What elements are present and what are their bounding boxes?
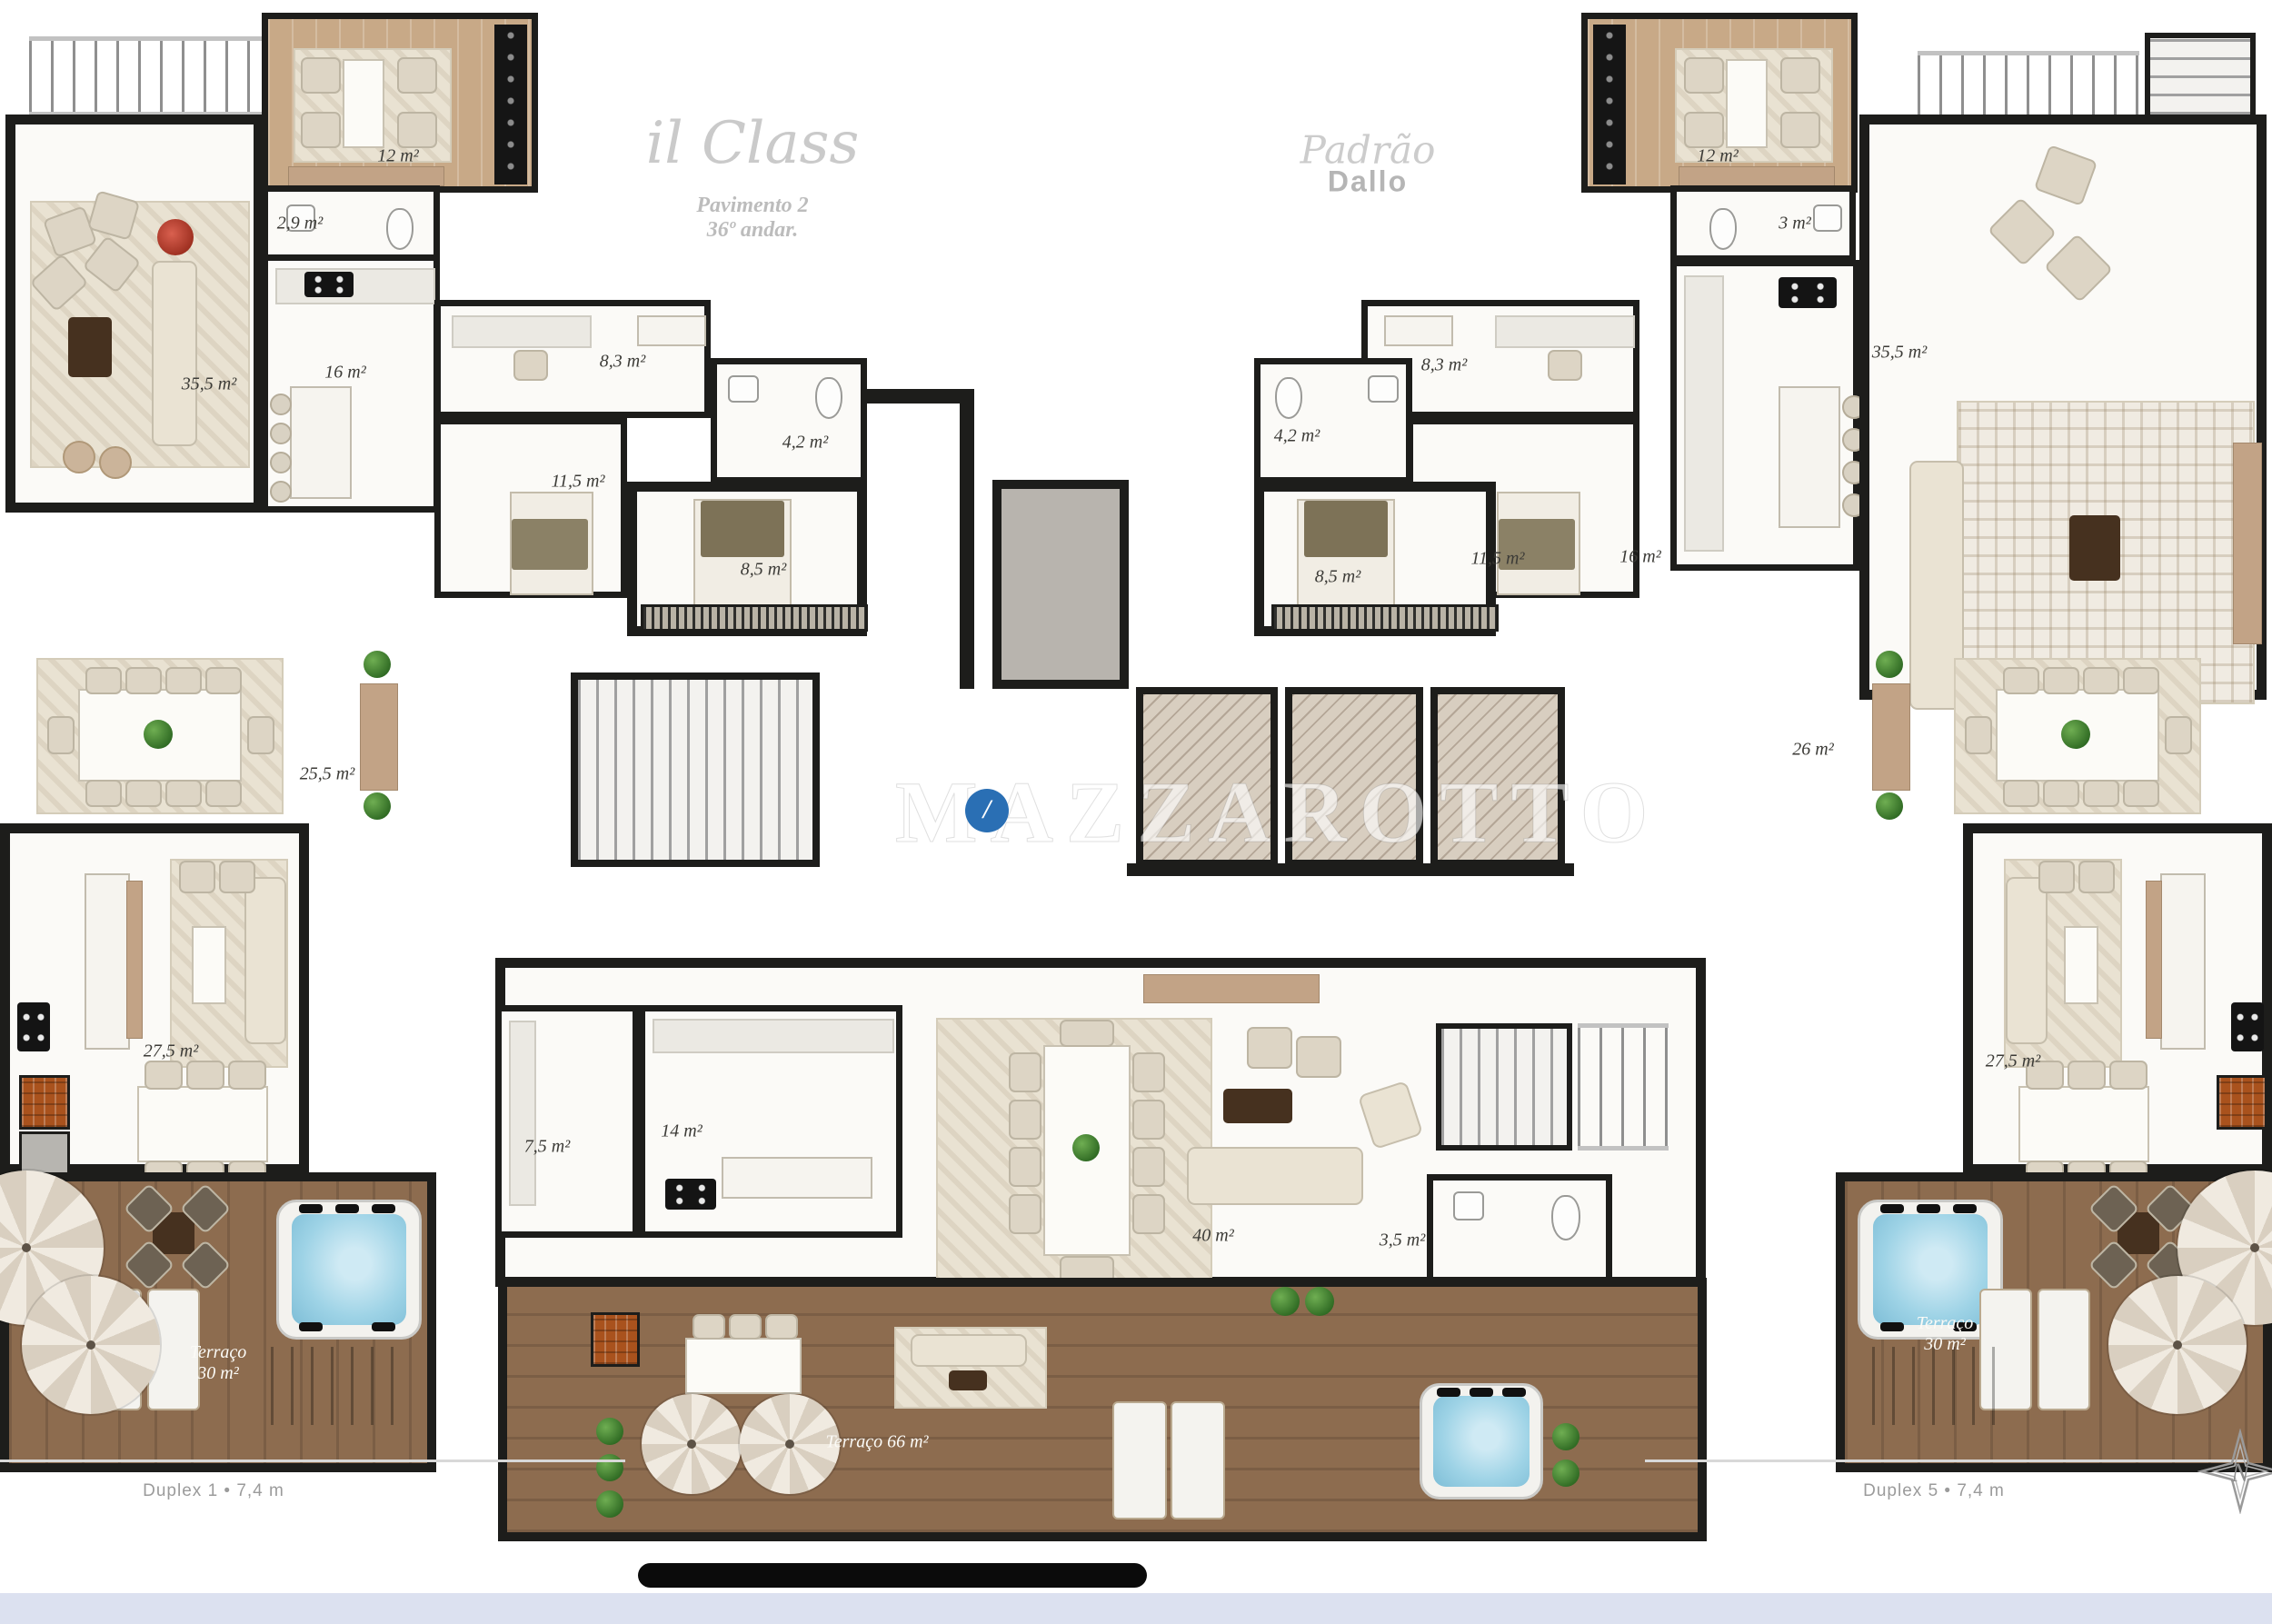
chair — [205, 780, 242, 807]
baseline-left — [0, 1460, 625, 1462]
left-suite-room — [434, 418, 627, 598]
armchair — [1780, 112, 1820, 148]
shrub-icon — [596, 1418, 623, 1445]
area-label-right-living: 35,5 m² — [1872, 343, 1927, 364]
chair — [1009, 1147, 1041, 1187]
chair — [2165, 716, 2192, 754]
wardrobe — [641, 604, 868, 632]
pouf — [99, 446, 132, 479]
hall-console — [360, 683, 398, 791]
chair — [47, 716, 75, 754]
jacuzzi — [276, 1200, 422, 1340]
terrace-name: Terraço — [1917, 1313, 1974, 1334]
wardrobe — [1271, 604, 1499, 632]
kitchen-island — [1779, 386, 1840, 528]
cooktop-icon — [17, 1002, 50, 1051]
armchair — [1780, 57, 1820, 94]
wine-cellar-icon — [1593, 25, 1626, 184]
center-pantry-room — [495, 1005, 639, 1238]
area-label-right-family: 27,5 m² — [1986, 1051, 2040, 1072]
blanket — [1304, 501, 1388, 557]
counter — [509, 1021, 536, 1206]
core-staircase — [571, 673, 820, 867]
armchair — [301, 112, 341, 148]
plant-icon — [1876, 651, 1903, 678]
center-duplex-stairs — [1436, 1023, 1572, 1151]
desk — [452, 315, 592, 348]
sofa — [152, 261, 197, 446]
jacuzzi — [1420, 1383, 1543, 1499]
stool — [270, 481, 292, 503]
chair — [85, 780, 122, 807]
core-wall — [960, 389, 974, 689]
bed — [1297, 499, 1395, 610]
cabinet — [1384, 315, 1453, 346]
area-label-left-family: 27,5 m² — [144, 1041, 198, 1062]
elevator-shaft — [992, 480, 1129, 689]
chair — [2003, 667, 2039, 694]
chair — [205, 667, 242, 694]
chair — [186, 1061, 224, 1090]
stool — [270, 423, 292, 444]
armchair — [2038, 861, 2075, 893]
core-wall — [863, 389, 974, 404]
sofa — [244, 877, 286, 1044]
area-label-center-pantry: 7,5 m² — [524, 1137, 570, 1158]
lounge-table — [1726, 59, 1768, 148]
center-dining-rug — [936, 1018, 1212, 1285]
chair — [765, 1314, 798, 1340]
right-family-room — [1963, 823, 2272, 1174]
cooktop-icon — [304, 272, 354, 297]
centerpiece-plant-icon — [1072, 1134, 1100, 1161]
armchair — [1988, 197, 2057, 266]
center-terrace-deck — [498, 1278, 1707, 1541]
shrub-icon — [1271, 1287, 1300, 1316]
cooktop-icon — [1779, 277, 1837, 308]
floor-plan: 12 m² 2,9 m² 35,5 m² 16 m² 8,3 m² 11,5 m… — [0, 0, 2272, 1624]
kitchen-counter — [1684, 275, 1724, 552]
toilet-icon — [386, 208, 414, 250]
centerpiece-plant-icon — [2061, 720, 2090, 749]
pouf — [63, 441, 95, 473]
sideboard — [85, 873, 130, 1050]
armchair — [397, 112, 437, 148]
chair — [2109, 1061, 2147, 1090]
deck-steps — [1872, 1347, 2008, 1425]
chair — [247, 716, 274, 754]
patio-dining-table — [685, 1338, 802, 1394]
area-label-right-bedroom: 8,5 m² — [1315, 567, 1360, 588]
area-label-center-lavabo: 3,5 m² — [1380, 1230, 1425, 1251]
chair — [2003, 780, 2039, 807]
jacuzzi-water — [1873, 1214, 1988, 1324]
sofa — [2006, 877, 2048, 1044]
standard-logo-bold: Dallo — [1328, 165, 1408, 199]
kitchen-island — [722, 1157, 872, 1199]
north-letter: N — [2230, 1458, 2251, 1488]
terrace-label-right: Terraço 30 m² — [1917, 1313, 1974, 1355]
terrace-label-left: Terraço 30 m² — [190, 1342, 247, 1384]
coffee-table — [192, 926, 226, 1004]
right-dining-rug — [1954, 658, 2201, 814]
sink-icon — [1813, 204, 1842, 232]
left-living-room — [5, 115, 264, 513]
bottom-strip — [0, 1593, 2272, 1624]
armchair — [2078, 861, 2115, 893]
sink-icon — [1453, 1191, 1484, 1220]
coffee-table — [2064, 926, 2098, 1004]
tv-sideboard — [1143, 974, 1320, 1003]
right-living-room — [1859, 115, 2267, 700]
left-kitchen-room — [262, 254, 440, 513]
area-label-left-living: 35,5 m² — [182, 374, 236, 395]
footer-label-duplex5: Duplex 5 • 7,4 m — [1863, 1481, 2005, 1501]
project-logo: il Class — [646, 110, 860, 177]
chair — [1132, 1147, 1165, 1187]
kitchen-island — [290, 386, 352, 499]
center-lavabo-room — [1427, 1174, 1612, 1283]
jacuzzi-water — [292, 1214, 406, 1324]
chair — [144, 1061, 183, 1090]
tv-bench — [2146, 881, 2162, 1039]
chair — [228, 1061, 266, 1090]
chair — [1009, 1194, 1041, 1234]
shrub-icon — [1552, 1423, 1579, 1450]
wine-cellar-icon — [494, 25, 527, 184]
chair — [1009, 1100, 1041, 1140]
media-console — [1679, 166, 1835, 186]
bed — [693, 499, 792, 610]
toilet-icon — [1275, 377, 1302, 419]
chair — [165, 780, 202, 807]
chair — [2083, 780, 2119, 807]
plant-icon — [364, 792, 391, 820]
blanket — [701, 501, 784, 557]
area-label-right-lounge: 12 m² — [1697, 146, 1738, 167]
area-label-right-suite: 11,5 m² — [1471, 549, 1525, 570]
chair — [1060, 1020, 1114, 1047]
area-label-right-office: 8,3 m² — [1421, 355, 1467, 376]
umbrella-icon — [642, 1394, 742, 1494]
armchair — [2044, 234, 2113, 303]
area-label-left-suite: 11,5 m² — [552, 472, 605, 493]
wood-oven-icon — [19, 1075, 70, 1130]
area-label-left-lavabo: 2,9 m² — [277, 214, 323, 234]
armchair — [2034, 144, 2098, 206]
cooktop-icon — [665, 1179, 716, 1210]
bed — [1497, 492, 1580, 595]
chair — [1009, 1052, 1041, 1092]
area-label-left-office: 8,3 m² — [600, 352, 645, 373]
armchair — [1684, 57, 1724, 94]
chair — [2123, 780, 2159, 807]
stool — [270, 452, 292, 473]
media-console — [288, 166, 444, 186]
floor-label-line2: 36º andar. — [696, 218, 808, 243]
stair-railing — [1578, 1023, 1669, 1151]
terrace-area: 30 m² — [190, 1363, 247, 1384]
shrub-icon — [596, 1454, 623, 1481]
terrace-name: Terraço — [190, 1342, 247, 1363]
chair — [2083, 667, 2119, 694]
centerpiece-plant-icon — [144, 720, 173, 749]
chair — [2068, 1061, 2106, 1090]
chair — [1132, 1100, 1165, 1140]
shrub-icon — [596, 1490, 623, 1518]
shrub-icon — [1552, 1460, 1579, 1487]
chair — [2043, 667, 2079, 694]
sofa — [1187, 1147, 1363, 1205]
console-table — [2233, 443, 2262, 644]
jacuzzi-water — [1433, 1396, 1530, 1487]
desk — [1495, 315, 1635, 348]
blanket — [512, 519, 588, 570]
dining-table — [137, 1086, 268, 1162]
baseline-right — [1645, 1460, 2247, 1462]
plant-icon — [157, 219, 194, 255]
area-label-center-kitchen: 14 m² — [661, 1121, 702, 1142]
floor-label-line1: Pavimento 2 — [696, 194, 808, 218]
area-label-right-bath: 4,2 m² — [1274, 426, 1320, 447]
armchair — [1247, 1027, 1292, 1069]
area-label-left-kitchen: 16 m² — [324, 363, 365, 384]
toilet-icon — [1709, 208, 1737, 250]
coffee-table — [2069, 515, 2120, 581]
chair — [2123, 667, 2159, 694]
coffee-table — [1223, 1089, 1292, 1123]
tv-bench — [126, 881, 143, 1039]
watermark-text: MAZZAROTTO — [895, 762, 1660, 862]
left-bath-room — [711, 358, 867, 483]
cooktop-icon — [2231, 1002, 2264, 1051]
chair — [85, 667, 122, 694]
area-label-right-kitchen: 16 m² — [1619, 547, 1660, 568]
shrub-icon — [1305, 1287, 1334, 1316]
grill-icon — [591, 1312, 640, 1367]
hall-console — [1872, 683, 1910, 791]
chair — [1132, 1194, 1165, 1234]
armchair — [179, 861, 215, 893]
scale-bar — [638, 1563, 1147, 1588]
chair — [165, 667, 202, 694]
dining-table — [2018, 1086, 2149, 1162]
terrace-label-center: Terraço 66 m² — [825, 1432, 928, 1453]
footer-label-duplex1: Duplex 1 • 7,4 m — [143, 1481, 284, 1501]
plant-icon — [364, 651, 391, 678]
chair — [729, 1314, 762, 1340]
armchair — [397, 57, 437, 94]
armchair — [219, 861, 255, 893]
north-compass-icon: N — [2197, 1429, 2272, 1514]
armchair — [301, 57, 341, 94]
kitchen-counter — [275, 268, 435, 304]
left-office-room — [434, 300, 711, 418]
sink-icon — [1368, 375, 1399, 403]
coffee-table — [68, 317, 112, 377]
area-label-right-lavabo: 3 m² — [1779, 214, 1810, 234]
wood-oven-icon — [2217, 1075, 2267, 1130]
right-terrace-deck — [1836, 1172, 2272, 1472]
right-bath-room — [1254, 358, 1412, 483]
umbrella-icon — [2108, 1276, 2247, 1414]
left-family-room — [0, 823, 309, 1174]
toilet-icon — [1551, 1195, 1580, 1240]
lounge-table — [343, 59, 384, 148]
area-label-left-bath: 4,2 m² — [782, 433, 828, 453]
right-bedroom-room — [1254, 482, 1496, 636]
toilet-icon — [815, 377, 842, 419]
area-label-left-lounge: 12 m² — [377, 146, 418, 167]
sun-lounger — [1171, 1401, 1225, 1519]
desk-chair — [1548, 350, 1582, 381]
left-terrace-deck — [0, 1172, 436, 1472]
sun-lounger — [1112, 1401, 1167, 1519]
plant-icon — [1876, 792, 1903, 820]
chair — [1965, 716, 1992, 754]
chair — [693, 1314, 725, 1340]
area-label-center-living: 40 m² — [1192, 1226, 1233, 1247]
counter — [653, 1019, 894, 1053]
armchair — [1296, 1036, 1341, 1078]
area-label-left-bedroom: 8,5 m² — [741, 560, 786, 581]
right-kitchen-room — [1670, 260, 1859, 571]
chair — [1132, 1052, 1165, 1092]
desk-chair — [513, 350, 548, 381]
armchair — [1684, 112, 1724, 148]
sink-icon — [728, 375, 759, 403]
bed — [510, 492, 593, 595]
watermark-logo-icon: / — [965, 789, 1009, 832]
sideboard — [2160, 873, 2206, 1050]
core-wall — [1127, 863, 1574, 876]
stool — [270, 394, 292, 415]
cabinet — [637, 315, 706, 346]
floor-label: Pavimento 2 36º andar. — [696, 194, 808, 243]
left-dining-rug — [36, 658, 284, 814]
deck-steps — [271, 1347, 407, 1425]
terrace-area: 30 m² — [1917, 1334, 1974, 1355]
outdoor-table — [949, 1370, 987, 1390]
chair — [2043, 780, 2079, 807]
chair — [125, 667, 162, 694]
chair — [125, 780, 162, 807]
umbrella-icon — [22, 1276, 160, 1414]
sun-lounger — [2038, 1289, 2090, 1410]
outdoor-sofa — [911, 1334, 1027, 1367]
right-lavabo-room — [1670, 185, 1856, 262]
area-label-left-dining: 25,5 m² — [300, 764, 354, 785]
area-label-right-dining: 26 m² — [1792, 740, 1833, 761]
